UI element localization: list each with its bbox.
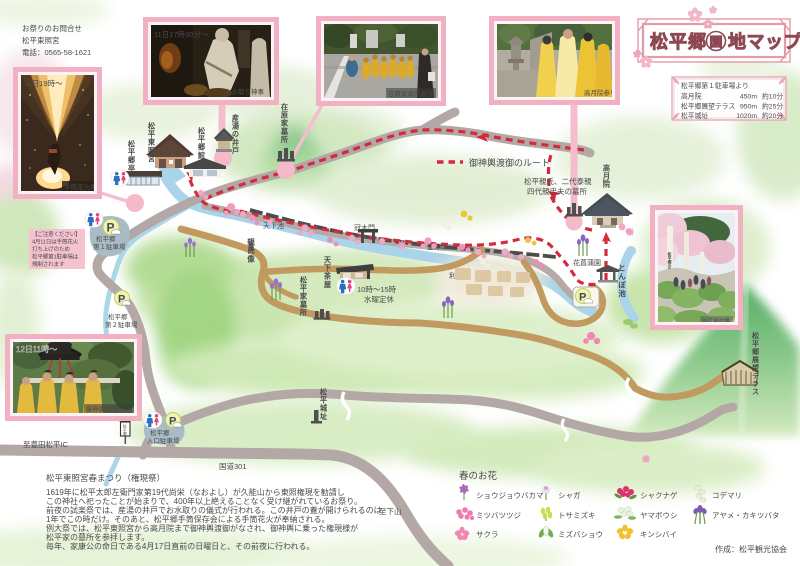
svg-text:作成：松平観光協会: 作成：松平観光協会: [715, 544, 787, 554]
svg-text:松平郷館: 松平郷館: [197, 126, 206, 160]
svg-text:松平東照宮: 松平東照宮: [147, 121, 156, 163]
svg-text:松平東照宮春まつり（権現祭）: 松平東照宮春まつり（権現祭）: [46, 473, 165, 483]
svg-text:12日11時～: 12日11時～: [16, 345, 57, 354]
svg-text:産湯の井戸: 産湯の井戸: [231, 113, 240, 155]
svg-text:御神輿渡御のルート: 御神輿渡御のルート: [469, 157, 550, 168]
svg-text:【ご注意ください】: 【ご注意ください】: [32, 230, 81, 238]
svg-text:松平郷: 松平郷: [122, 424, 127, 436]
svg-text:松平城址: 松平城址: [319, 387, 328, 421]
svg-text:至下山: 至下山: [379, 506, 402, 516]
svg-text:11日17時30分～: 11日17時30分～: [154, 30, 209, 39]
svg-text:コデマリ: コデマリ: [712, 490, 742, 500]
svg-text:高月院: 高月院: [602, 163, 611, 188]
svg-text:松平郷展望テラス: 松平郷展望テラス: [681, 102, 735, 111]
svg-text:4月11日は手筒花火: 4月11日は手筒花火: [32, 238, 79, 246]
svg-text:天下池: 天下池: [263, 221, 284, 230]
svg-text:アヤメ・カキツバタ: アヤメ・カキツバタ: [712, 511, 779, 520]
svg-text:四代親忠夫の墓所: 四代親忠夫の墓所: [527, 186, 587, 196]
svg-text:サクラ: サクラ: [476, 530, 499, 539]
svg-text:450m: 450m: [740, 94, 757, 101]
svg-text:とんぼ池: とんぼ池: [617, 264, 626, 299]
svg-text:松平親氏、二代泰親: 松平親氏、二代泰親: [524, 176, 592, 186]
svg-text:国道301: 国道301: [219, 461, 247, 471]
svg-text:至豊田松平IC: 至豊田松平IC: [23, 439, 69, 449]
svg-text:ミズバショウ: ミズバショウ: [558, 529, 603, 539]
svg-text:1020m: 1020m: [736, 113, 757, 120]
svg-text:松平城址: 松平城址: [681, 111, 708, 120]
svg-text:高月院: 高月院: [681, 92, 702, 101]
svg-text:冠木門: 冠木門: [354, 223, 375, 232]
svg-text:入口駐車場: 入口駐車場: [147, 436, 180, 445]
svg-text:950m: 950m: [740, 104, 757, 111]
svg-text:お水取り神事: お水取り神事: [225, 87, 265, 96]
svg-text:お祭りのお問合せ: お祭りのお問合せ: [22, 23, 82, 33]
svg-text:在原家墓所参り: 在原家墓所参り: [388, 89, 434, 98]
svg-text:松平郷亭: 松平郷亭: [127, 139, 136, 173]
svg-text:松平郷: 松平郷: [150, 428, 170, 437]
svg-text:電話：0565-58-1621: 電話：0565-58-1621: [22, 47, 91, 57]
svg-text:ミツバツツジ: ミツバツツジ: [476, 511, 521, 520]
svg-text:地マップ: 地マップ: [728, 31, 800, 52]
svg-text:10時～15時: 10時～15時: [357, 285, 397, 294]
svg-text:トサミズキ: トサミズキ: [558, 510, 596, 520]
svg-text:松平郷: 松平郷: [650, 31, 707, 52]
svg-text:キンシバイ: キンシバイ: [640, 530, 677, 539]
svg-text:松平郷第１駐車場より: 松平郷第１駐車場より: [681, 81, 749, 90]
svg-text:水曜定休: 水曜定休: [364, 294, 394, 304]
svg-text:花菖蒲園: 花菖蒲園: [573, 258, 601, 267]
svg-text:松平家墓所: 松平家墓所: [299, 275, 308, 317]
svg-text:1年でこの時だけ。そのあと、松平郷手筒保存会による手筒花火が: 1年でこの時だけ。そのあと、松平郷手筒保存会による手筒花火が奉納される。: [46, 514, 330, 524]
svg-text:1619年に松平太郎左衛門家第19代尚栄（なおよし）が久能山: 1619年に松平太郎左衛門家第19代尚栄（なおよし）が久能山から東照権現を勧請し: [46, 487, 345, 497]
svg-text:第２駐車場: 第２駐車場: [105, 320, 138, 329]
svg-text:松平郷: 松平郷: [108, 312, 128, 321]
svg-text:第１駐車場: 第１駐車場: [93, 242, 126, 251]
svg-text:在原家墓所: 在原家墓所: [280, 102, 289, 144]
svg-text:前夜の試楽祭では、産湯の井戸でお水取りの儀式が行われる。この: 前夜の試楽祭では、産湯の井戸でお水取りの儀式が行われる。この井戸の蓋が開けられる…: [46, 505, 382, 515]
svg-text:この神社へ祀ったことが始まりで、400年以上絶えることなく受: この神社へ祀ったことが始まりで、400年以上絶えることなく受け継がれているお祭り…: [46, 496, 362, 506]
svg-text:ショウジョウバカマ: ショウジョウバカマ: [476, 491, 544, 500]
svg-text:約25分: 約25分: [762, 102, 783, 111]
svg-text:春のお花: 春のお花: [459, 470, 498, 482]
svg-text:松平郷: 松平郷: [96, 234, 116, 243]
svg-text:松平東照宮: 松平東照宮: [22, 35, 60, 45]
svg-text:御神輿渡御: 御神輿渡御: [86, 404, 119, 413]
svg-text:ヤマボウシ: ヤマボウシ: [640, 511, 678, 520]
svg-text:約10分: 約10分: [762, 92, 783, 101]
svg-text:天下茶屋: 天下茶屋: [323, 256, 332, 289]
svg-text:毎年、家康公の命日である4月17日直前の日曜日と、その前夜に: 毎年、家康公の命日である4月17日直前の日曜日と、その前夜に行われる。: [46, 541, 315, 551]
svg-text:松平郷第1駐車場は: 松平郷第1駐車場は: [32, 253, 79, 261]
svg-text:親氏像: 親氏像: [246, 237, 255, 264]
svg-text:例大祭では、松平東照宮から高月院まで御神輿渡御がなされ、御神: 例大祭では、松平東照宮から高月院まで御神輿渡御がなされ、御神輿に乗った権現様が: [46, 523, 358, 533]
svg-text:11日19時～: 11日19時～: [24, 79, 63, 88]
svg-text:松平家の墓所を参拝します。: 松平家の墓所を参拝します。: [46, 532, 149, 542]
svg-text:約20分: 約20分: [762, 111, 783, 120]
svg-text:シャガ: シャガ: [558, 490, 581, 500]
svg-text:シャクナゲ: シャクナゲ: [640, 491, 678, 500]
svg-text:高月院参り: 高月院参り: [584, 88, 617, 97]
svg-text:園: 園: [710, 35, 723, 50]
svg-text:打ち上げのため: 打ち上げのため: [32, 245, 70, 253]
svg-text:規制されます: 規制されます: [32, 260, 65, 268]
